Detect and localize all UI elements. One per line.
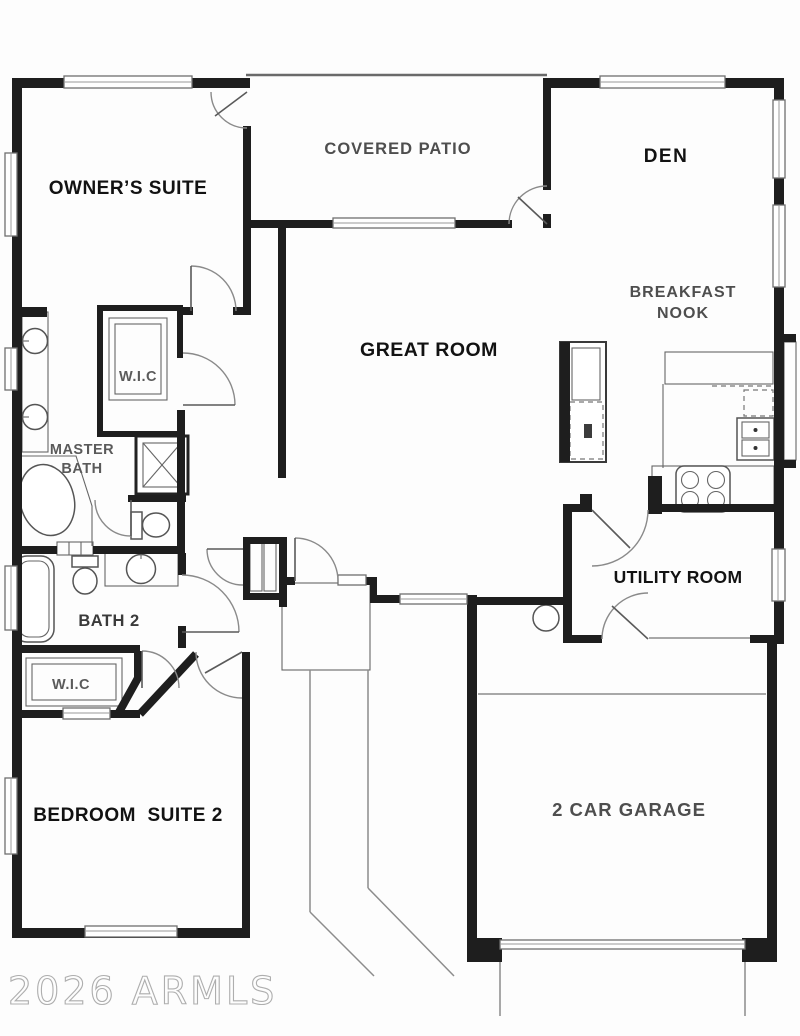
- bath2-toilet: [72, 556, 98, 594]
- master-toilet: [131, 512, 170, 539]
- window: [773, 205, 785, 287]
- utility-garage-door: [602, 593, 648, 639]
- driveway-lines: [500, 962, 745, 1016]
- master-wic-door: [183, 353, 235, 405]
- double-oven: [737, 418, 774, 460]
- master-vanity: [22, 312, 48, 452]
- window: [5, 348, 17, 390]
- garage-step-line: [478, 638, 766, 694]
- label-breakfast-nook-2: NOOK: [657, 305, 709, 322]
- label-master-wic: W.I.C: [119, 369, 157, 385]
- sidelight-window: [338, 575, 366, 585]
- window: [63, 708, 110, 719]
- label-den: DEN: [644, 146, 689, 167]
- bedroom2-door: [196, 652, 242, 698]
- bath2-vanity: [105, 551, 178, 586]
- coat-closet-bifold-doors: [250, 543, 276, 591]
- water-heater: [533, 605, 559, 631]
- window: [773, 100, 785, 178]
- window: [5, 566, 17, 630]
- label-covered-patio: COVERED PATIO: [324, 140, 471, 158]
- linen-closet: [57, 542, 93, 555]
- label-garage: 2 CAR GARAGE: [552, 799, 706, 820]
- label-breakfast-nook-1: BREAKFAST: [630, 284, 737, 301]
- label-owners-suite: OWNER’S SUITE: [49, 178, 208, 199]
- owners-suite-patio-door: [211, 92, 247, 128]
- owners-suite-entry-door: [191, 266, 236, 311]
- label-utility-room: UTILITY ROOM: [614, 567, 743, 587]
- window: [772, 549, 785, 601]
- watermark: 2026 ARMLS: [8, 969, 277, 1013]
- window: [400, 594, 467, 604]
- sliding-glass-door: [333, 218, 455, 228]
- master-wic-shelves: [109, 318, 167, 400]
- window: [600, 76, 725, 88]
- label-master-bath-2: BATH: [61, 461, 102, 477]
- entry-walkway: [282, 583, 454, 976]
- walls: [12, 78, 796, 962]
- front-door: [295, 538, 338, 581]
- window: [85, 926, 177, 937]
- window: [5, 778, 17, 854]
- utility-kitchen-door: [592, 510, 648, 566]
- label-master-bath-1: MASTER: [50, 442, 114, 458]
- water-closet-door: [95, 500, 131, 536]
- label-bath2: BATH 2: [78, 612, 139, 630]
- floor-plan-drawing: OWNER’S SUITE COVERED PATIO DEN BREAKFAS…: [0, 0, 800, 1036]
- label-bedroom2: BEDROOM SUITE 2: [33, 805, 223, 826]
- label-bedroom-wic: W.I.C: [52, 677, 90, 693]
- window: [64, 76, 192, 88]
- floor-plan-page: OWNER’S SUITE COVERED PATIO DEN BREAKFAS…: [0, 0, 800, 1036]
- garage-door: [500, 940, 745, 949]
- label-great-room: GREAT ROOM: [360, 339, 498, 361]
- coat-closet-door: [207, 549, 243, 585]
- angled-walls: [118, 651, 196, 714]
- patio-door: [509, 186, 547, 224]
- window: [5, 153, 17, 236]
